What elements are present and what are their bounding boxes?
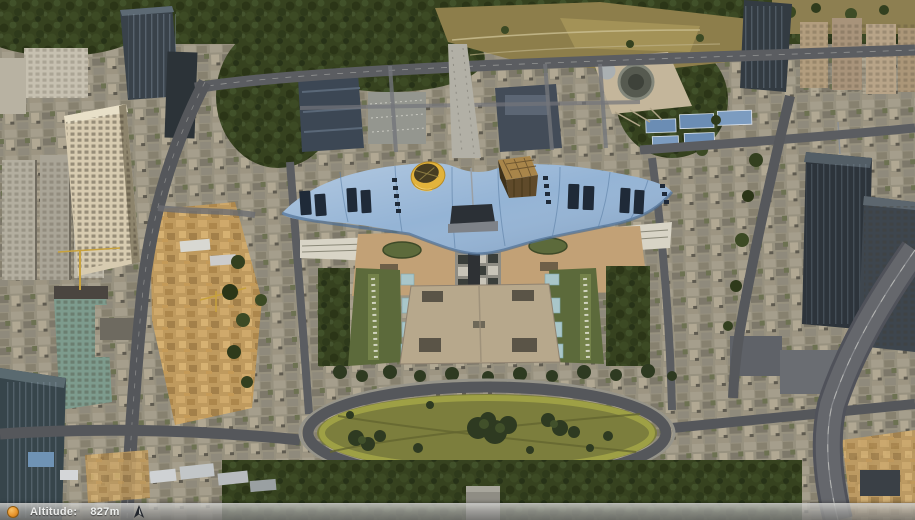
map-viewport[interactable]: Altitude: 827m	[0, 0, 915, 520]
streaming-indicator-icon	[7, 506, 19, 518]
aerial-scene	[0, 0, 915, 520]
altitude-value: 827m	[90, 506, 119, 518]
status-bar: Altitude: 827m	[0, 503, 915, 520]
altitude-label: Altitude:	[30, 506, 77, 518]
compass-arrow-icon[interactable]	[133, 505, 145, 519]
